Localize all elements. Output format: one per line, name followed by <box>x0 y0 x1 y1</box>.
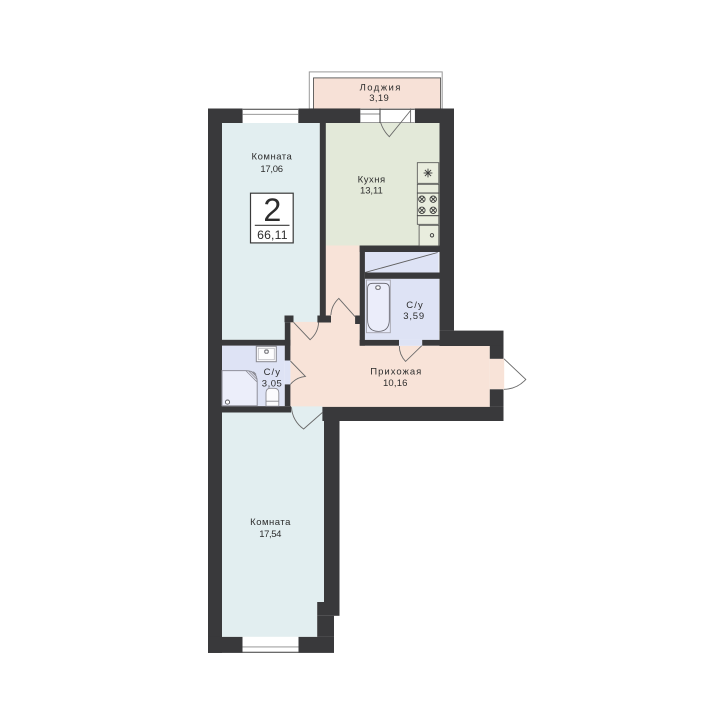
svg-text:13,11: 13,11 <box>360 186 383 197</box>
svg-text:Комната: Комната <box>250 517 291 528</box>
svg-text:Комната: Комната <box>252 152 293 163</box>
svg-text:17,54: 17,54 <box>259 529 281 540</box>
svg-text:С/у: С/у <box>264 367 281 378</box>
svg-text:3,19: 3,19 <box>369 93 389 104</box>
svg-text:3,59: 3,59 <box>403 311 424 322</box>
svg-text:66,11: 66,11 <box>257 228 288 242</box>
svg-text:10,16: 10,16 <box>383 378 408 389</box>
svg-text:Прихожая: Прихожая <box>370 366 421 377</box>
svg-text:С/у: С/у <box>406 300 423 311</box>
svg-text:2: 2 <box>263 192 281 228</box>
svg-text:17,06: 17,06 <box>260 164 283 175</box>
svg-text:3,05: 3,05 <box>262 378 282 389</box>
svg-text:Кухня: Кухня <box>358 175 386 186</box>
